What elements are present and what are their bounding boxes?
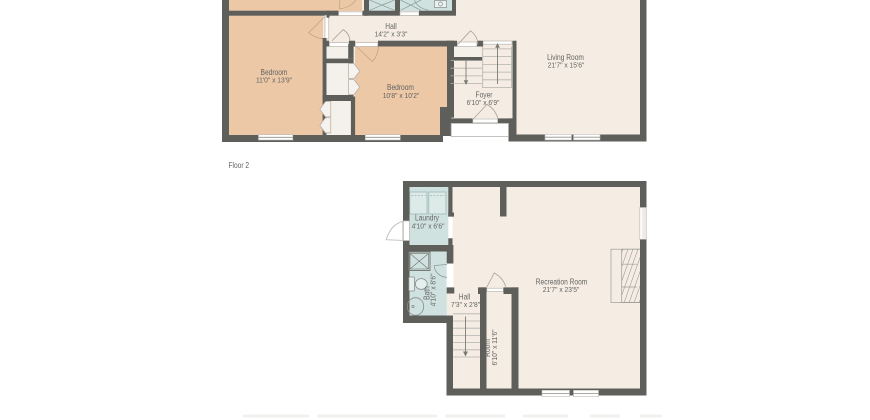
svg-text:21'7" x 15'6": 21'7" x 15'6" xyxy=(548,61,585,69)
svg-text:7'3" x 2'8": 7'3" x 2'8" xyxy=(451,301,481,309)
svg-text:21'7" x 23'5": 21'7" x 23'5" xyxy=(543,285,580,293)
svg-text:4'10" x 6'6": 4'10" x 6'6" xyxy=(412,222,445,230)
svg-text:6'10" x 6'9": 6'10" x 6'9" xyxy=(467,99,500,107)
svg-text:11'0" x 13'9": 11'0" x 13'9" xyxy=(256,76,293,84)
svg-text:Floor 2: Floor 2 xyxy=(229,160,250,170)
svg-text:6'10" x 11'6": 6'10" x 11'6" xyxy=(491,329,499,366)
svg-text:4'10" x 8'6": 4'10" x 8'6" xyxy=(429,273,437,306)
svg-text:14'2" x 3'3": 14'2" x 3'3" xyxy=(375,30,408,38)
svg-text:10'8" x 10'2": 10'8" x 10'2" xyxy=(383,91,420,99)
